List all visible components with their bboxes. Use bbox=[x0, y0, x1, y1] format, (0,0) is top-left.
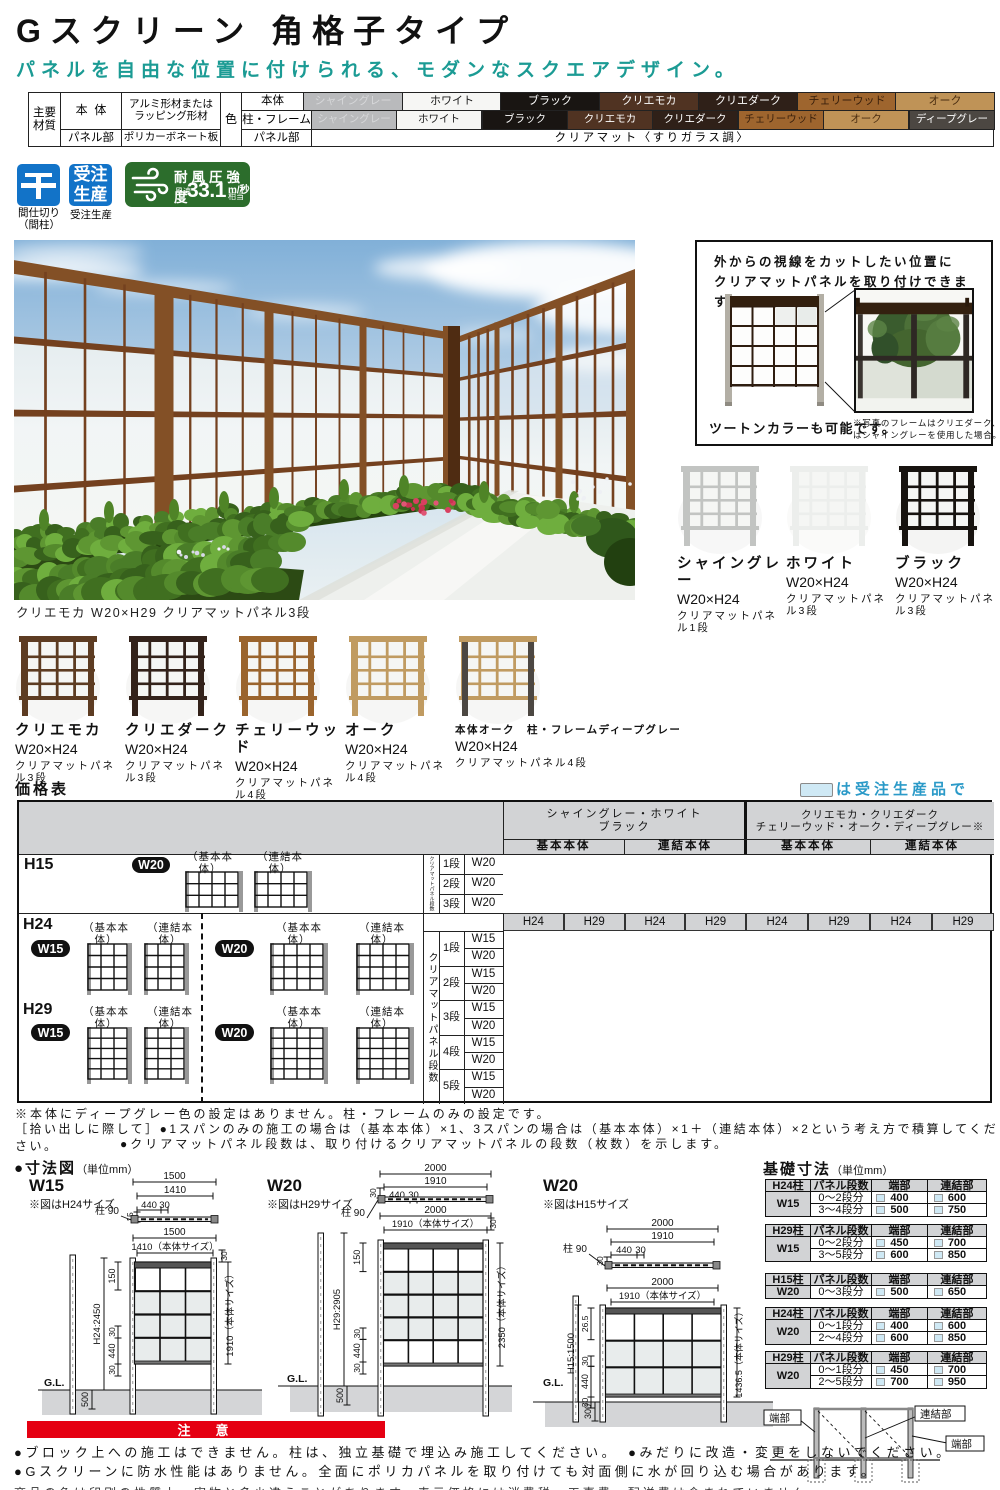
svg-text:2000: 2000 bbox=[651, 1218, 674, 1229]
svg-text:端部: 端部 bbox=[951, 1438, 972, 1451]
svg-text:150: 150 bbox=[352, 1250, 362, 1265]
svg-text:柱 90: 柱 90 bbox=[95, 1204, 119, 1217]
svg-text:30: 30 bbox=[107, 1327, 117, 1337]
svg-text:2000: 2000 bbox=[424, 1163, 447, 1174]
svg-text:30: 30 bbox=[368, 1188, 378, 1198]
svg-text:連結部: 連結部 bbox=[920, 1408, 952, 1421]
svg-text:30: 30 bbox=[488, 1219, 498, 1229]
svg-text:26.5: 26.5 bbox=[580, 1315, 590, 1332]
svg-text:500: 500 bbox=[80, 1392, 90, 1407]
svg-text:440: 440 bbox=[141, 1200, 157, 1211]
svg-text:30: 30 bbox=[107, 1365, 117, 1375]
svg-text:440: 440 bbox=[107, 1343, 117, 1358]
svg-text:150: 150 bbox=[107, 1268, 117, 1283]
svg-text:30: 30 bbox=[635, 1245, 646, 1256]
svg-text:440: 440 bbox=[352, 1343, 362, 1358]
svg-text:1910（本体サイズ）: 1910（本体サイズ） bbox=[224, 1269, 236, 1356]
svg-text:30: 30 bbox=[595, 1256, 605, 1266]
svg-text:1500: 1500 bbox=[163, 1171, 186, 1182]
svg-text:1410: 1410 bbox=[164, 1185, 187, 1196]
svg-text:H24:2450: H24:2450 bbox=[92, 1303, 103, 1344]
svg-text:500: 500 bbox=[335, 1388, 345, 1403]
svg-text:30: 30 bbox=[580, 1356, 590, 1366]
svg-text:H15:1500: H15:1500 bbox=[566, 1333, 577, 1374]
svg-text:G.L.: G.L. bbox=[44, 1377, 64, 1389]
svg-text:440: 440 bbox=[580, 1374, 590, 1389]
svg-text:G.L.: G.L. bbox=[543, 1377, 563, 1389]
svg-text:1436.5（本体サイズ）: 1436.5（本体サイズ） bbox=[733, 1307, 744, 1397]
svg-text:H29:2905: H29:2905 bbox=[332, 1289, 343, 1330]
svg-text:G.L.: G.L. bbox=[287, 1373, 307, 1385]
svg-text:2000: 2000 bbox=[651, 1277, 674, 1288]
svg-text:柱 90: 柱 90 bbox=[563, 1242, 587, 1255]
svg-text:30: 30 bbox=[352, 1329, 362, 1339]
svg-text:1910: 1910 bbox=[424, 1176, 447, 1187]
svg-text:30: 30 bbox=[219, 1251, 229, 1261]
svg-text:端部: 端部 bbox=[769, 1412, 790, 1425]
svg-text:30: 30 bbox=[159, 1200, 170, 1211]
svg-text:300: 300 bbox=[583, 1404, 593, 1419]
svg-text:1910（本体サイズ）: 1910（本体サイズ） bbox=[392, 1218, 479, 1230]
svg-text:440: 440 bbox=[616, 1245, 632, 1256]
svg-text:1910（本体サイズ）: 1910（本体サイズ） bbox=[619, 1290, 706, 1302]
svg-text:柱 90: 柱 90 bbox=[341, 1206, 365, 1219]
svg-text:30: 30 bbox=[352, 1363, 362, 1373]
svg-text:1910: 1910 bbox=[651, 1231, 674, 1242]
svg-text:1500: 1500 bbox=[163, 1227, 186, 1238]
svg-text:2000: 2000 bbox=[424, 1205, 447, 1216]
svg-text:2350（本体サイズ）: 2350（本体サイズ） bbox=[496, 1261, 508, 1348]
svg-text:1410（本体サイズ）: 1410（本体サイズ） bbox=[131, 1241, 218, 1253]
